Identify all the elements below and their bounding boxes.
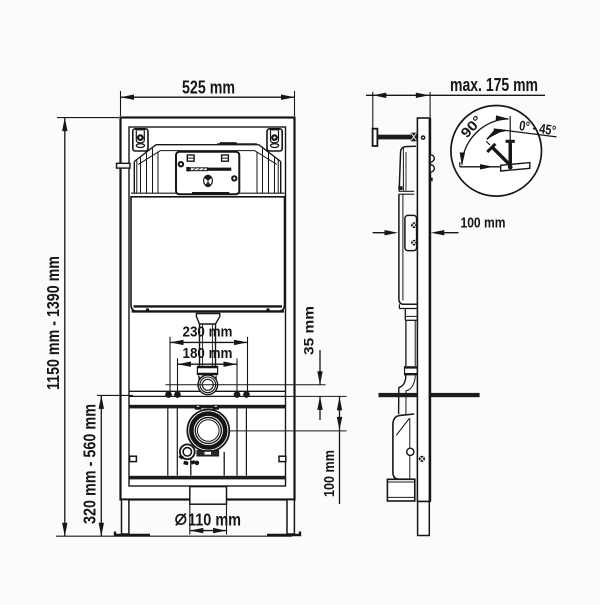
svg-text:180 mm: 180 mm	[183, 346, 233, 362]
svg-text:100 mm: 100 mm	[461, 215, 506, 232]
svg-text:110 mm: 110 mm	[188, 509, 241, 529]
svg-text:100 mm: 100 mm	[321, 450, 338, 497]
svg-text:525 mm: 525 mm	[182, 78, 235, 98]
svg-text:320 mm - 560 mm: 320 mm - 560 mm	[80, 404, 100, 524]
svg-text:1150 mm - 1390 mm: 1150 mm - 1390 mm	[43, 256, 63, 390]
svg-text:35 mm: 35 mm	[301, 306, 317, 355]
svg-text:230 mm: 230 mm	[183, 325, 233, 341]
svg-text:max. 175 mm: max. 175 mm	[450, 75, 538, 95]
